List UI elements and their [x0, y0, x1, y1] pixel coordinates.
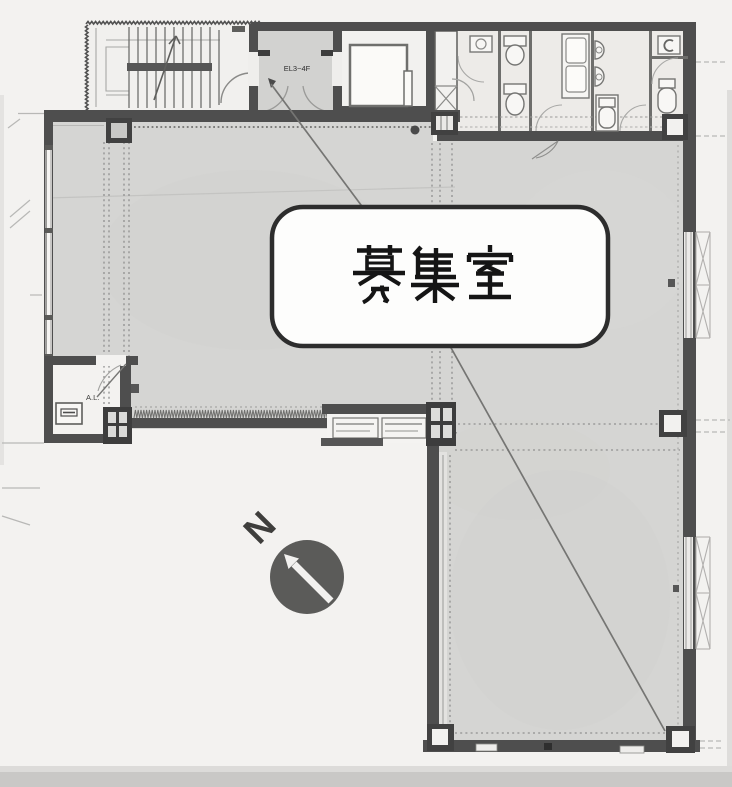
svg-text:A.L.: A.L. — [86, 393, 99, 402]
svg-text:EL3~4F: EL3~4F — [284, 64, 311, 73]
